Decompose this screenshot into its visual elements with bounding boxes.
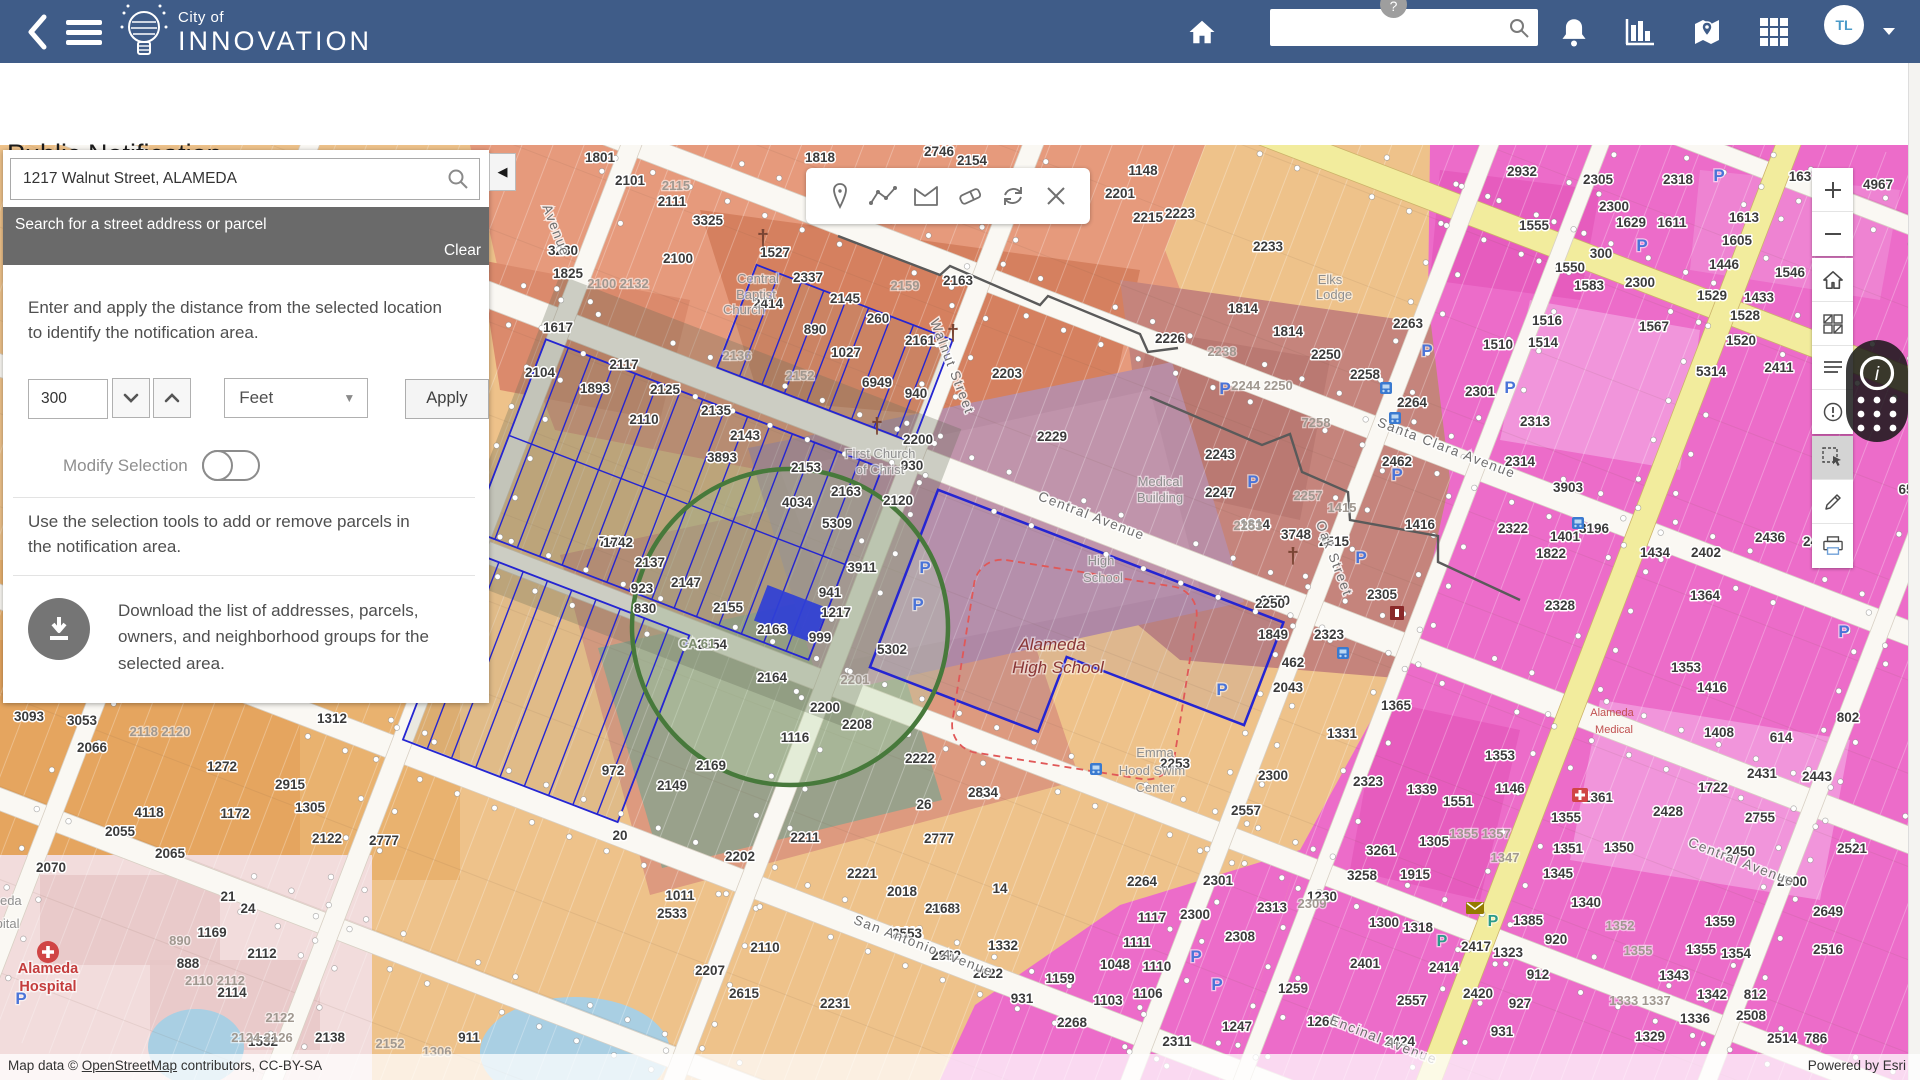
menu-button[interactable] [66, 15, 106, 49]
map-label: 1103 [1093, 993, 1123, 1008]
map-label: P [1636, 236, 1647, 255]
map-label: 2328 [1545, 598, 1576, 613]
default-extent-button[interactable] [1812, 258, 1853, 302]
draw-button[interactable] [1812, 480, 1853, 524]
map-label: 2208 [842, 717, 873, 732]
map-label: Baptist [736, 287, 776, 302]
account-menu-button[interactable] [1874, 0, 1904, 63]
map-label: 2223 [1165, 206, 1196, 221]
select-parcels-button[interactable] [1812, 436, 1853, 480]
map-label: 2147 [671, 575, 701, 590]
map-label: 2521 [1837, 841, 1868, 856]
map-label: 1401 [1550, 529, 1581, 544]
map-label: 1217 [821, 605, 851, 620]
draw-polyline-button[interactable] [866, 179, 900, 213]
draw-polygon-button[interactable] [909, 179, 943, 213]
printer-icon [1822, 536, 1844, 556]
map-label: 4118 [134, 805, 164, 820]
selection-toolbar [1812, 436, 1853, 568]
search-hint: Search for a street address or parcel [15, 216, 267, 234]
map-label: 2516 [1813, 942, 1844, 957]
download-icon [45, 615, 73, 643]
map-label: P [1216, 680, 1227, 699]
download-button[interactable] [28, 598, 90, 660]
map-label: Elks [1318, 272, 1343, 287]
map-label: 2229 [1037, 429, 1067, 444]
map-label: 911 [458, 1030, 480, 1045]
map-label: 1106 [1133, 986, 1163, 1001]
home-button[interactable] [1180, 0, 1224, 63]
map-label: 2065 [155, 846, 186, 861]
map-label: 2300 [1599, 199, 1629, 214]
download-text: Download the list of addresses, parcels,… [118, 598, 448, 677]
map-label: 1323 [1493, 945, 1524, 960]
map-label: 2135 [701, 403, 732, 418]
map-label: 3053 [67, 713, 98, 728]
map-label: 2309 [1298, 896, 1327, 911]
chevron-down-icon [123, 393, 139, 403]
chevron-up-icon [164, 393, 180, 403]
distance-instructions: Enter and apply the distance from the se… [28, 296, 458, 345]
map-label: 1893 [580, 381, 611, 396]
church-icon: † [871, 413, 883, 438]
map-label: 2222 [905, 751, 935, 766]
attribution-right: Powered by Esri [1808, 1058, 1906, 1073]
map-label: 2155 [713, 600, 744, 615]
map-label: 2300 [1258, 768, 1288, 783]
map-label: 2250 [1311, 347, 1341, 362]
map-label: 21 [220, 889, 236, 904]
map-label: High School [1012, 658, 1105, 677]
map-label: 1555 [1519, 218, 1550, 233]
map-label: 931 [1011, 991, 1034, 1006]
map-label: Hospital [19, 979, 76, 995]
map-label: 2557 [1397, 993, 1427, 1008]
map-label: 2201 [1105, 186, 1136, 201]
map-label: 1446 [1709, 257, 1740, 272]
map-label: 2154 [957, 153, 988, 168]
map-label: 1364 [1690, 588, 1721, 603]
map-label: 2202 [725, 849, 755, 864]
map-label: 1355 [1686, 942, 1717, 957]
map-label: 2323 [1353, 774, 1384, 789]
home-icon [1822, 270, 1844, 290]
map-label: Hood Swim [1119, 763, 1185, 778]
clear-button[interactable]: Clear [444, 242, 481, 260]
map-label: 2257 [1294, 488, 1323, 503]
map-label: 2118 2120 [130, 724, 191, 739]
map-label: 2152 [786, 368, 815, 383]
map-label: 2305 [1367, 587, 1398, 602]
map-label: 2207 [695, 963, 725, 978]
map-label: 2834 [968, 785, 999, 800]
map-label: 1111 [1123, 935, 1151, 950]
map-label: 462 [1282, 655, 1305, 670]
eraser-icon [957, 185, 983, 207]
map-label: 2203 [992, 366, 1023, 381]
map-label: 1159 [1045, 971, 1074, 986]
map-label: 2018 [887, 884, 918, 899]
attribution-left: Map data © OpenStreetMap contributors, C… [8, 1058, 322, 1073]
map-label: 1510 [1483, 337, 1513, 352]
logo-innovation: INNOVATION [178, 28, 372, 55]
layers-icon [1823, 360, 1843, 376]
search-icon[interactable] [447, 168, 469, 190]
draw-point-button[interactable] [823, 179, 857, 213]
map-label: 1354 [1721, 946, 1752, 961]
map-label: Alameda [1017, 635, 1085, 654]
redo-refresh-button[interactable] [996, 179, 1030, 213]
map-label: 2243 [1205, 447, 1236, 462]
map-label: 2318 [1663, 172, 1694, 187]
church-icon: † [947, 320, 959, 345]
map-label: 2104 [525, 365, 556, 380]
church-icon: † [1287, 543, 1299, 568]
map-label: 1551 [1443, 794, 1474, 809]
map-label: 1629 [1616, 215, 1646, 230]
search-icon[interactable] [1508, 17, 1530, 39]
map-label: 1818 [805, 150, 836, 165]
map-label: 2431 [1747, 766, 1778, 781]
unit-value: Feet [239, 388, 273, 408]
map-label: 1550 [1555, 260, 1585, 275]
map-label: 2169 [696, 758, 726, 773]
logo-city-of: City of [178, 10, 372, 25]
search-panel: Search for a street address or parcel Cl… [3, 150, 489, 703]
map-label: 1433 [1744, 290, 1775, 305]
map-label: 1434 [1640, 545, 1671, 560]
map-label: 2247 [1205, 485, 1235, 500]
basemap-icon [1823, 314, 1843, 334]
map-label: 1331 [1327, 726, 1358, 741]
map-label: 1385 [1513, 913, 1544, 928]
map-label: 1353 [1671, 660, 1702, 675]
map-label: 1822 [1536, 546, 1566, 561]
map-label: Hospital [0, 916, 20, 931]
map-label: 2120 [883, 493, 913, 508]
address-search-box [10, 158, 480, 200]
map-label: P [1713, 166, 1724, 185]
map-label: 2311 [1162, 1034, 1192, 1049]
map-label: High [1088, 553, 1115, 568]
map-label: 2301 [1203, 873, 1234, 888]
scrollbar[interactable] [1908, 63, 1920, 1080]
map-label: 300 [1590, 246, 1613, 261]
map-pin-icon [1691, 16, 1723, 48]
map-label: 2200 [810, 700, 840, 715]
map-label: 2263 [1393, 316, 1424, 331]
map-label: 2253 [1234, 518, 1263, 533]
map-label: 2136 [723, 348, 752, 363]
map-label: Central [737, 271, 779, 286]
clear-sketch-button[interactable] [1039, 179, 1073, 213]
map-label: Emma [1136, 745, 1174, 760]
download-row: Download the list of addresses, parcels,… [28, 598, 448, 677]
map-label: 2313 [1257, 900, 1288, 915]
map-label: 1305 [295, 800, 326, 815]
minus-icon [1824, 225, 1842, 243]
map-label: 802 [1837, 710, 1860, 725]
map-label: 1825 [553, 266, 584, 281]
map-label: 2143 [730, 428, 761, 443]
map-label: 931 [1491, 1024, 1514, 1039]
map-label: 2268 [1057, 1015, 1088, 1030]
map-label: 890 [804, 322, 827, 337]
map-label: P [1219, 379, 1230, 398]
map-label: 1359 [1705, 914, 1735, 929]
charts-button[interactable] [1616, 0, 1664, 63]
map-label: 4967 [1863, 177, 1893, 192]
map-label: 1416 [1697, 680, 1728, 695]
bell-icon [1560, 17, 1588, 47]
info-icon [1823, 402, 1843, 422]
map-label: P [1247, 472, 1258, 491]
map-label: 2264 [1397, 395, 1428, 410]
map-label: 2755 [1745, 810, 1776, 825]
map-label: 2201 [841, 672, 870, 687]
map-label: 2238 [1208, 344, 1237, 359]
map-label: P [1355, 548, 1366, 567]
map-label: 1613 [1729, 210, 1760, 225]
map-label: 1318 [1403, 920, 1434, 935]
back-chevron-icon [24, 11, 52, 53]
map-label: 1011 [665, 888, 695, 903]
map-label: 1849 [1258, 627, 1288, 642]
map-label: 1353 [1485, 748, 1516, 763]
map-label: 2110 [750, 940, 779, 955]
svg-text:i: i [1875, 364, 1880, 385]
map-label: 2300 [1180, 907, 1210, 922]
modify-selection-toggle[interactable] [202, 450, 260, 481]
map-label: 1546 [1775, 265, 1806, 280]
map-label: P [912, 595, 923, 614]
grid-icon [1759, 17, 1789, 47]
map-label: 2149 [657, 778, 687, 793]
map-label: 1514 [1528, 335, 1559, 350]
church-icon: † [757, 225, 769, 250]
select-tool-icon [1822, 447, 1844, 469]
header-search [1270, 9, 1538, 46]
apps-button[interactable] [1752, 0, 1796, 63]
map-label: Alameda [18, 961, 79, 977]
map-label: 972 [602, 763, 625, 778]
map-label: 2153 [791, 460, 822, 475]
map-label: 1355 [1551, 810, 1582, 825]
map-label: 1332 [988, 938, 1018, 953]
hamburger-icon [66, 20, 102, 25]
panel-collapse-button[interactable]: ◀ [489, 153, 516, 191]
bar-chart-icon [1624, 17, 1656, 47]
map-label: 1110 [1143, 959, 1172, 974]
map-label: 1722 [1698, 780, 1728, 795]
unit-select[interactable]: Feet ▼ [224, 378, 368, 418]
map-label: 2159 [891, 278, 920, 293]
map-label: P [1421, 341, 1432, 360]
map-label: 2436 [1755, 530, 1786, 545]
erase-button[interactable] [953, 179, 987, 213]
map-label: 1742 [603, 535, 633, 550]
refresh-icon [1000, 184, 1026, 208]
map-label: 2066 [77, 740, 108, 755]
map-label: 26 [916, 797, 932, 812]
map-label: 1300 [1369, 915, 1399, 930]
distance-increment-button[interactable] [153, 378, 191, 418]
distance-decrement-button[interactable] [112, 378, 150, 418]
map-label: 1567 [1639, 319, 1669, 334]
divider [13, 575, 475, 576]
map-label: 890 [169, 933, 191, 948]
distance-controls: Feet ▼ Apply [28, 378, 489, 420]
map-label: 7258 [1302, 415, 1331, 430]
back-button[interactable] [24, 11, 52, 53]
map-label: 786 [1805, 1031, 1828, 1046]
zoom-in-button[interactable] [1812, 168, 1853, 212]
map-label: of Christ [856, 462, 905, 477]
map-label: 1336 [1680, 1011, 1711, 1026]
map-label: 1305 [1419, 834, 1450, 849]
map-label: 163 [1789, 169, 1812, 184]
map-label: P [919, 558, 930, 577]
close-icon [1045, 185, 1067, 207]
map-label: 2305 [1583, 172, 1614, 187]
map-label: 1342 [1697, 987, 1727, 1002]
map-label: First Church [845, 446, 916, 461]
map-label: 2163 [831, 484, 862, 499]
toggle-knob [202, 450, 233, 481]
title-bar: Public Notification [0, 63, 1920, 145]
map-label: School [1083, 570, 1123, 585]
map-label: 1333 1337 [1609, 993, 1670, 1008]
zoom-out-button[interactable] [1812, 212, 1853, 256]
map-label: 1355 [1624, 943, 1653, 958]
map-label: 2746 [924, 145, 955, 159]
map-label: 2110 [629, 412, 658, 427]
map-button[interactable] [1684, 0, 1730, 63]
map-label: 927 [1509, 996, 1532, 1011]
modify-selection-row: Modify Selection [63, 450, 260, 481]
map-label: P [1211, 975, 1222, 994]
map-label: 2055 [105, 824, 136, 839]
pencil-icon [1823, 492, 1843, 512]
osm-link[interactable]: OpenStreetMap [82, 1058, 177, 1073]
map-label: P [1488, 913, 1499, 930]
map-label: 1027 [831, 345, 861, 360]
map-label: 1350 [1604, 840, 1634, 855]
map-label: 1259 [1278, 981, 1308, 996]
map-label: Center [1135, 780, 1175, 795]
map-label: 2308 [1225, 929, 1256, 944]
map-label: 2200 [903, 432, 933, 447]
map-label: 1339 [1407, 782, 1437, 797]
map-label: 2932 [1507, 164, 1537, 179]
map-label: 888 [177, 956, 200, 971]
avatar[interactable]: TL [1824, 5, 1864, 45]
map-label: 2244 2250 [1231, 378, 1292, 393]
map-label: 2300 [1625, 275, 1655, 290]
map-label: Church [723, 302, 765, 317]
plus-icon [1824, 181, 1842, 199]
map-label: 1915 [1400, 867, 1431, 882]
map-label: CA 61 [679, 636, 715, 651]
map-label: Medical [1595, 724, 1633, 736]
map-label: 2777 [369, 833, 399, 848]
map-label: 3893 [707, 450, 738, 465]
map-label: 999 [809, 630, 832, 645]
chevron-down-icon [1882, 27, 1896, 37]
map-label: 1355 1357 [1449, 826, 1510, 841]
map-label: 2313 [1520, 414, 1551, 429]
app-header: City of INNOVATION ? [0, 0, 1920, 63]
map-label: 1048 [1100, 957, 1131, 972]
map-label: 260 [867, 311, 890, 326]
map-label: 2221 [847, 866, 878, 881]
map-label: 2401 [1350, 956, 1381, 971]
map-label: P [1391, 465, 1402, 484]
distance-input[interactable] [28, 379, 108, 419]
map-label: 2428 [1653, 804, 1684, 819]
map-label: 2533 [657, 906, 688, 921]
map-label: 3093 [14, 709, 45, 724]
print-button[interactable] [1812, 524, 1853, 568]
map-label: 2508 [1736, 1008, 1767, 1023]
zoom-toolbar [1812, 168, 1853, 256]
map-label: 1611 [1657, 215, 1687, 230]
map-label: 1146 [1495, 781, 1525, 796]
map-label: 2250 [1255, 596, 1285, 611]
map-label: 5314 [1696, 364, 1727, 379]
map-label: 1169 [197, 925, 226, 940]
map-label: 2915 [275, 777, 306, 792]
map-label: 2043 [1273, 680, 1304, 695]
map-label: 940 [905, 386, 928, 401]
map-label: 1529 [1697, 288, 1727, 303]
map-label: 2137 [635, 555, 665, 570]
map-label: 2117 [609, 357, 638, 372]
notifications-button[interactable] [1552, 0, 1596, 63]
map-label: 1312 [317, 711, 347, 726]
map-label: 3748 [1281, 527, 1312, 542]
map-label: 1801 [585, 150, 616, 165]
map-label: 812 [1744, 987, 1767, 1002]
map-label: 2420 [1463, 986, 1493, 1001]
map-label: P [1838, 622, 1849, 641]
map-label: 2402 [1691, 545, 1721, 560]
map-label: 2110 2112 [185, 973, 245, 988]
map-label: 1516 [1532, 313, 1563, 328]
map-label: 2264 [1127, 874, 1158, 889]
map-label: 2417 [1461, 939, 1491, 954]
select-caret-icon: ▼ [343, 391, 355, 405]
map-label: 1617 [543, 320, 573, 335]
map-label: 2122 [312, 831, 342, 846]
map-label: Medical [1138, 474, 1183, 489]
map-label: 3325 [693, 213, 724, 228]
sketch-toolbar [806, 168, 1090, 224]
map-label: 1416 [1405, 517, 1436, 532]
map-label: 2323 [1314, 627, 1345, 642]
map-label: 1172 [220, 806, 249, 821]
map-label: 2301 [1465, 384, 1496, 399]
apply-button[interactable]: Apply [405, 379, 489, 419]
map-label: 1329 [1635, 1029, 1665, 1044]
map-label: 24 [240, 901, 256, 916]
map-label: 2125 [650, 382, 681, 397]
address-search-input[interactable] [21, 165, 435, 193]
cursor-overlay-icon: i [1846, 340, 1908, 442]
map-label: 2145 [830, 291, 861, 306]
map-label: 1345 [1543, 866, 1574, 881]
map-label: 5302 [877, 642, 907, 657]
